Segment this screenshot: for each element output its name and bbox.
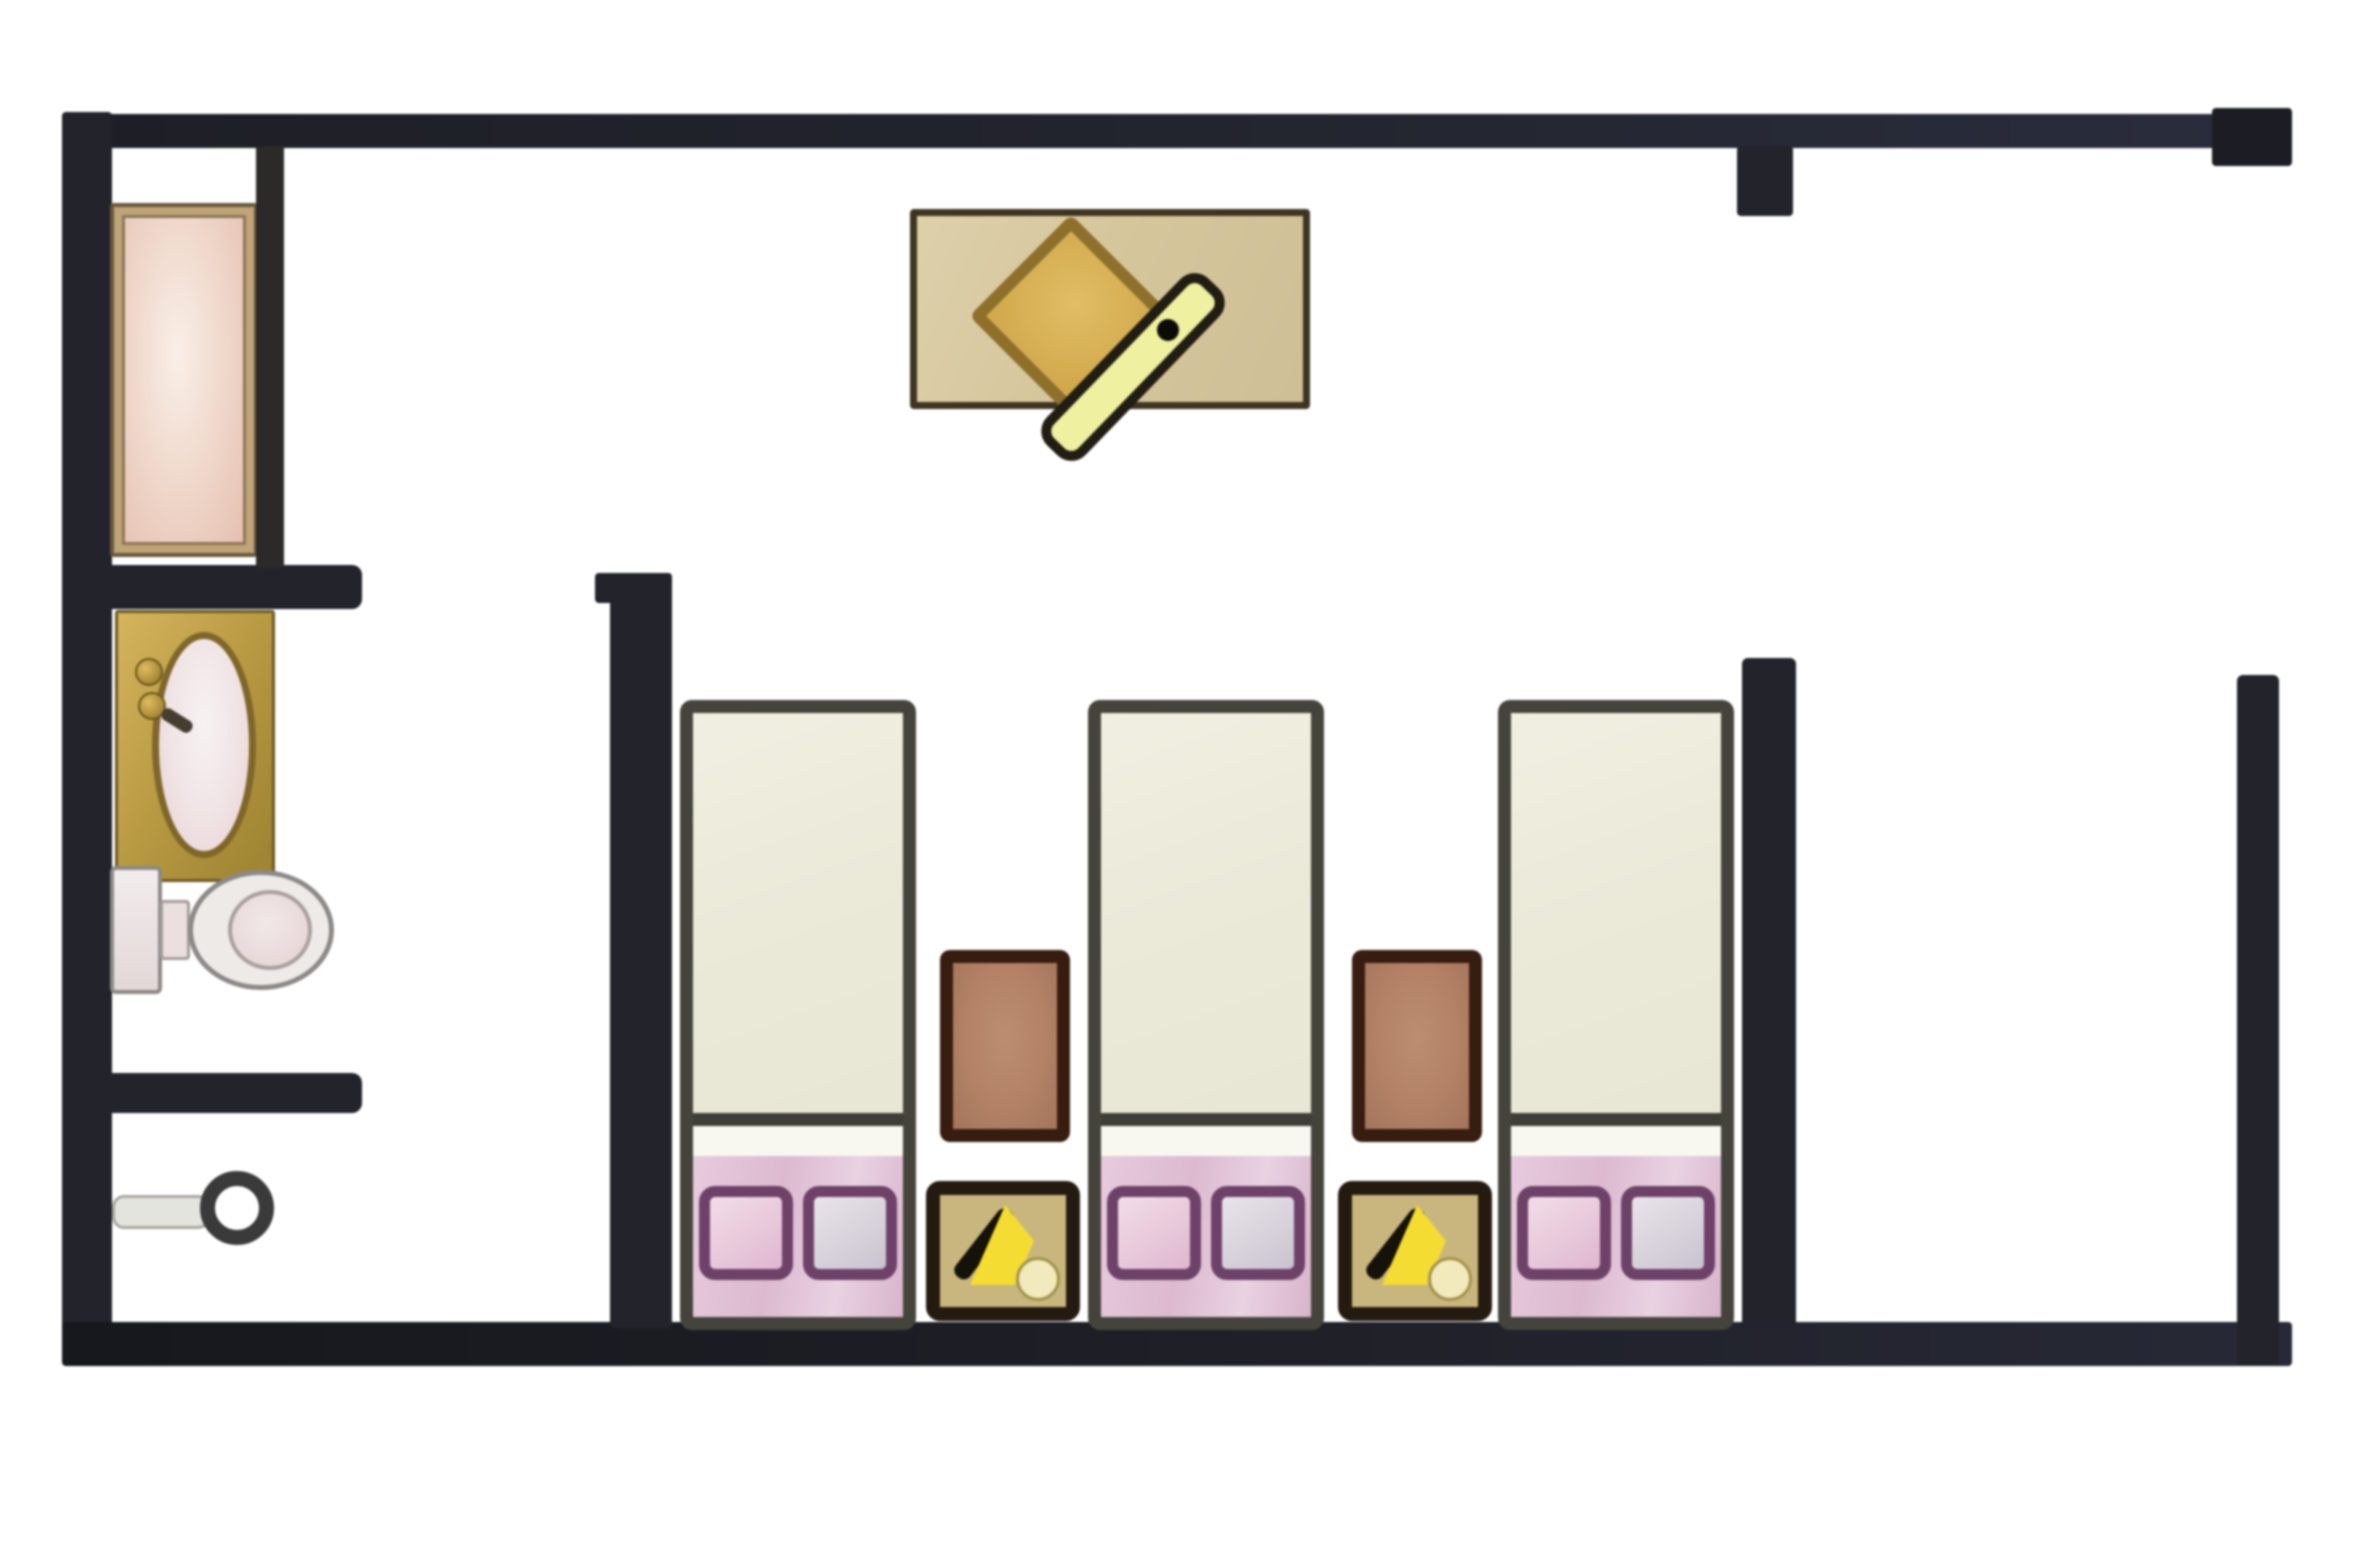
pillow xyxy=(699,1186,793,1280)
bedside-rug-1 xyxy=(940,950,1070,1142)
wall-top-end-cap xyxy=(2212,108,2292,166)
bed-3 xyxy=(1498,700,1734,1330)
faucet-knob xyxy=(135,658,163,686)
wall-bathroom-divider-lower xyxy=(62,1073,362,1113)
wall-bathroom-divider-upper xyxy=(62,565,362,609)
bed-pillow-area xyxy=(1101,1156,1311,1317)
pillow xyxy=(1107,1186,1201,1280)
shower-screen xyxy=(256,146,284,568)
bed-pillow-area xyxy=(693,1156,903,1317)
bed-mattress xyxy=(1101,713,1311,1113)
pillow xyxy=(1211,1186,1305,1280)
door-knob-stem xyxy=(112,1195,210,1229)
bed-pillow-area xyxy=(1511,1156,1721,1317)
wall-stub-left xyxy=(610,573,672,1328)
side-table-1 xyxy=(926,1181,1080,1321)
toilet-tank xyxy=(110,866,162,994)
wall-top-tab xyxy=(1737,146,1793,216)
door-knob-ring xyxy=(200,1171,274,1245)
pillow xyxy=(1621,1186,1715,1280)
bed-2 xyxy=(1088,700,1324,1330)
sink-basin xyxy=(152,632,256,858)
bedside-rug-2 xyxy=(1352,950,1482,1142)
bed-mattress xyxy=(1511,713,1721,1113)
pillow xyxy=(1517,1186,1611,1280)
bed-blanket-fold xyxy=(1511,1113,1721,1126)
chair-dot xyxy=(1157,319,1179,341)
wall-right xyxy=(2237,675,2279,1365)
toilet-neck xyxy=(160,900,190,960)
bed-blanket-fold xyxy=(1101,1113,1311,1126)
floor-plan xyxy=(0,0,2377,1550)
bed-sheet xyxy=(1511,1126,1721,1156)
wall-top xyxy=(62,114,2290,148)
wall-stub-right xyxy=(1742,658,1796,1328)
lamp-base-icon xyxy=(1016,1257,1060,1301)
bed-mattress xyxy=(693,713,903,1113)
side-table-2 xyxy=(1338,1181,1492,1321)
bed-1 xyxy=(680,700,916,1330)
bed-sheet xyxy=(1101,1126,1311,1156)
toilet-bowl-inner xyxy=(228,890,312,970)
bed-blanket-fold xyxy=(693,1113,903,1126)
bathtub xyxy=(110,203,258,557)
pillow xyxy=(803,1186,897,1280)
bed-sheet xyxy=(693,1126,903,1156)
wall-left xyxy=(62,112,112,1360)
lamp-base-icon xyxy=(1428,1257,1472,1301)
bathtub-basin xyxy=(122,215,246,545)
